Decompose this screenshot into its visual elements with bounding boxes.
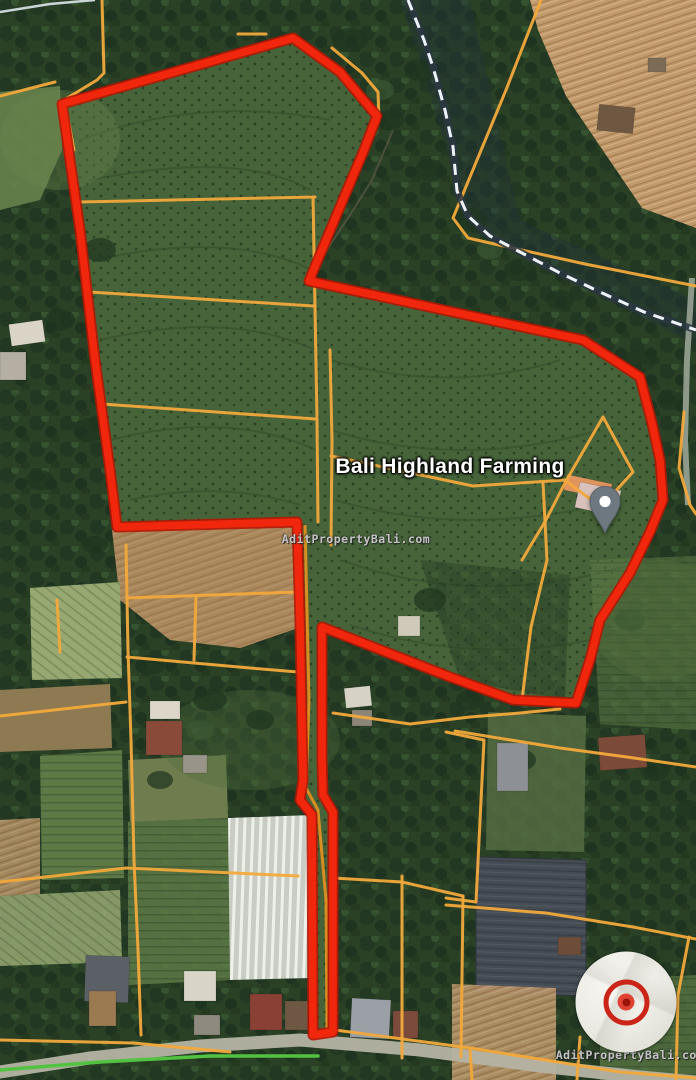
place-label-text: Bali Highland Farming (335, 455, 564, 478)
locate-target-button[interactable] (576, 952, 677, 1053)
place-label[interactable]: Bali Highland Farming (335, 455, 564, 479)
map-viewport[interactable]: Bali Highland Farming AditPropertyBali.c… (0, 0, 696, 1080)
watermark: AditPropertyBali.com (282, 532, 430, 546)
target-icon (603, 979, 649, 1025)
